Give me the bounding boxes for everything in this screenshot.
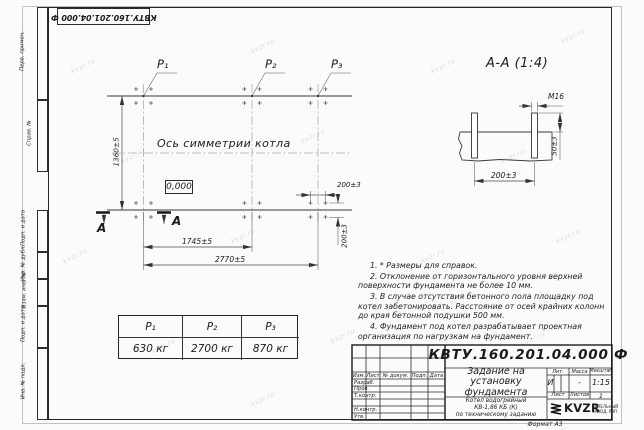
tb-col-podp: Подп. bbox=[411, 374, 428, 379]
doc-title: Задание на установку фундамента bbox=[447, 369, 545, 396]
lit-value: И bbox=[547, 379, 554, 387]
scale-label: Масштаб bbox=[590, 370, 612, 375]
section-letter-left: А bbox=[97, 222, 106, 234]
dim-1745: 1745±5 bbox=[182, 238, 212, 246]
symmetry-axis-label: Ось симметрии котла bbox=[157, 138, 291, 149]
p-leaders bbox=[144, 73, 352, 96]
note-item: 4. Фундамент под котел разрабатывает про… bbox=[358, 322, 610, 341]
sheets-label: Листов bbox=[569, 393, 590, 398]
dim-m16: М16 bbox=[548, 93, 564, 101]
note-item: 2. Отклонение от горизонтального уровня … bbox=[358, 272, 610, 291]
logo-caption-1: КОТЕЛЬНЫЙ bbox=[592, 405, 618, 409]
tb-row-nkontr: Н.контр. bbox=[354, 408, 377, 413]
plan-view bbox=[96, 73, 352, 270]
load-point-label-p2: P₂ bbox=[265, 59, 277, 71]
dim-200-horizontal: 200±3 bbox=[337, 182, 361, 189]
product-line-2: КВ-1,86 КБ (К) bbox=[447, 406, 545, 412]
sheets-value: 1 bbox=[590, 393, 612, 400]
section-letter-right: А bbox=[172, 215, 181, 227]
elevation-value: 0,000 bbox=[166, 183, 192, 192]
tb-col-izm: Изм. bbox=[352, 374, 366, 379]
mass-value: - bbox=[569, 379, 590, 387]
section-title: А-А (1:4) bbox=[486, 57, 548, 70]
elevation-mark: 0,000 bbox=[165, 180, 193, 194]
dim-1360: 1360±5 bbox=[112, 137, 119, 166]
spring-icon bbox=[549, 402, 564, 417]
anchor-bolt-left bbox=[472, 113, 478, 158]
sheet-label: Лист bbox=[547, 393, 569, 398]
tb-row-tkontr: Т.контр. bbox=[354, 394, 376, 399]
notes-block: 1. * Размеры для справок.2. Отклонение о… bbox=[358, 261, 610, 342]
designation: КВТУ.160.201.04.000 Ф bbox=[447, 349, 610, 363]
tb-col-data: Дата bbox=[428, 374, 445, 379]
drawing-sheet: kvzr.rukvzr.rukvzr.rukvzr.rukvzr.rukvzr.… bbox=[0, 0, 644, 430]
load-table-value: 630 кг bbox=[119, 338, 183, 360]
tb-col-ndokum: № докум. bbox=[380, 374, 411, 379]
logo-cell: KVZR КОТЕЛЬНЫЙ ЗАВОД, РЭП bbox=[548, 400, 611, 419]
note-item: 1. * Размеры для справок. bbox=[358, 261, 610, 271]
dim-2770: 2770±5 bbox=[215, 256, 245, 264]
mass-label: Масса bbox=[569, 370, 590, 375]
load-table-header: P₂ bbox=[183, 316, 242, 338]
lit-label: Лит. bbox=[547, 370, 569, 375]
product-line-1: Котел водогрейный bbox=[447, 399, 545, 405]
load-table-value: 870 кг bbox=[242, 338, 299, 360]
tb-row-prov: Пров. bbox=[354, 387, 369, 392]
logo-caption-2: ЗАВОД, РЭП bbox=[592, 410, 617, 414]
load-table-value: 2700 кг bbox=[183, 338, 242, 360]
tb-col-list: Лист bbox=[366, 374, 380, 379]
dim-200-section: 200±3 bbox=[491, 172, 516, 180]
tb-row-utv: Утв. bbox=[354, 415, 365, 420]
dim-50: 50±3 bbox=[552, 136, 559, 155]
dim-200-vertical: 200±3 bbox=[342, 224, 349, 248]
load-table-header: P₁ bbox=[119, 316, 183, 338]
load-point-label-p1: P₁ bbox=[157, 59, 169, 71]
load-table: P₁ P₂ P₃ 630 кг 2700 кг 870 кг bbox=[118, 315, 298, 359]
scale-value: 1:15 bbox=[590, 379, 612, 387]
note-item: 3. В случае отсутствия бетонного пола пл… bbox=[358, 292, 610, 321]
tb-row-razrab: Разраб. bbox=[354, 381, 374, 386]
section-cut-marks bbox=[96, 213, 171, 225]
format-note: Формат А3 bbox=[515, 422, 575, 428]
load-table-header: P₃ bbox=[242, 316, 299, 338]
anchor-bolt-right bbox=[532, 113, 538, 158]
product-line-3: по техническому заданию bbox=[447, 413, 545, 419]
load-point-label-p3: P₃ bbox=[331, 59, 343, 71]
